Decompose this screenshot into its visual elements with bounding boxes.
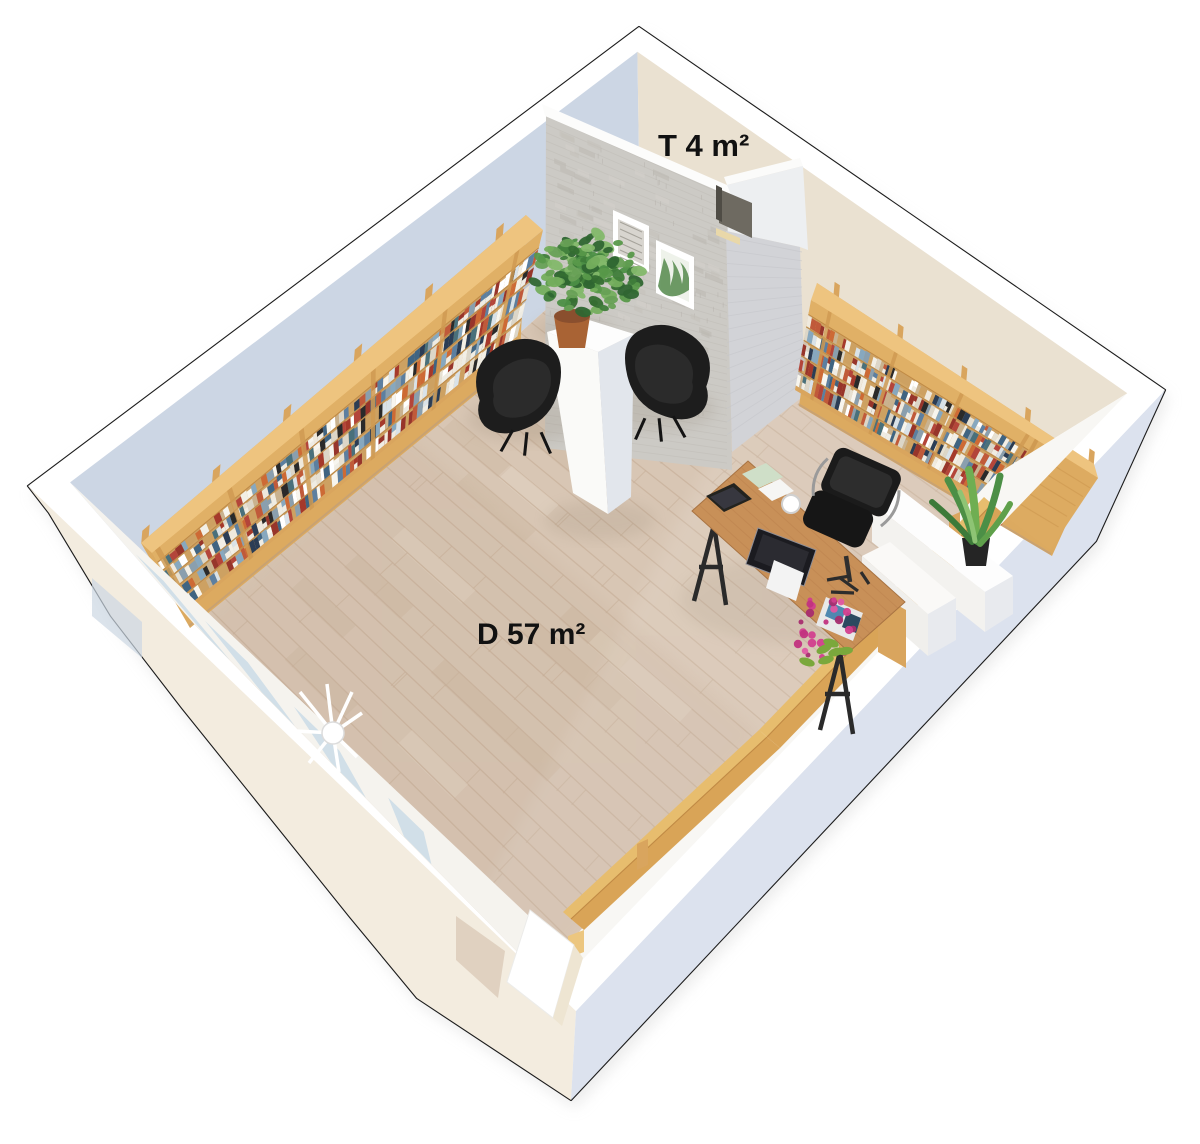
svg-text:D 57 m²: D 57 m²	[477, 618, 585, 651]
svg-text:T 4 m²: T 4 m²	[658, 128, 749, 163]
